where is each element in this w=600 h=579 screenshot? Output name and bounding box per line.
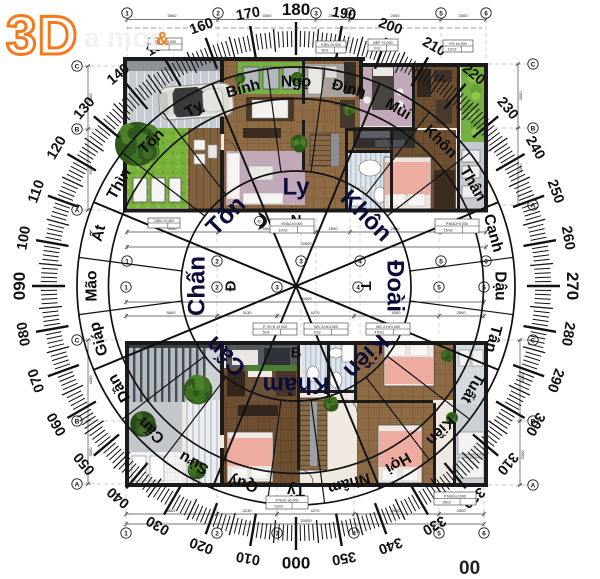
- svg-text:3: 3: [275, 284, 279, 291]
- svg-text:2: 2: [216, 10, 220, 17]
- svg-text:P.K ±0.000: P.K ±0.000: [449, 42, 466, 46]
- svg-text:5: 5: [439, 10, 443, 17]
- svg-text:WC 2-H±3.000: WC 2-H±3.000: [314, 325, 338, 329]
- svg-text:Mão: Mão: [83, 271, 100, 302]
- svg-text:3000: 3000: [88, 447, 93, 457]
- svg-text:5: 5: [439, 258, 443, 265]
- svg-text:T: T: [357, 281, 374, 290]
- svg-text:4270: 4270: [311, 508, 321, 513]
- svg-text:B: B: [75, 418, 80, 425]
- svg-text:KHÁC±0.000: KHÁC±0.000: [282, 222, 303, 226]
- svg-text:15m2: 15m2: [444, 229, 453, 233]
- svg-text:5800: 5800: [167, 310, 177, 315]
- svg-text:P. VS Đ ±3.000: P. VS Đ ±3.000: [263, 325, 287, 329]
- svg-text:090: 090: [10, 272, 29, 300]
- svg-text:6: 6: [482, 530, 486, 537]
- svg-text:1: 1: [124, 284, 128, 291]
- svg-text:&: &: [156, 29, 169, 49]
- svg-text:9m2: 9m2: [322, 49, 329, 53]
- svg-text:1: 1: [125, 10, 129, 17]
- svg-text:3D: 3D: [6, 4, 78, 66]
- svg-text:5m2: 5m2: [263, 331, 270, 335]
- svg-text:a mod: a mod: [84, 22, 166, 53]
- svg-text:270: 270: [563, 272, 582, 300]
- svg-text:7m2: 7m2: [374, 47, 381, 51]
- svg-text:B: B: [531, 125, 536, 132]
- svg-text:2m2: 2m2: [314, 331, 321, 335]
- svg-text:2500: 2500: [457, 310, 467, 315]
- svg-text:180: 180: [282, 0, 310, 19]
- svg-text:2500: 2500: [329, 226, 339, 231]
- svg-text:Đoài: Đoài: [382, 260, 409, 312]
- svg-text:00: 00: [459, 558, 480, 579]
- svg-text:3000: 3000: [518, 91, 523, 101]
- svg-text:C: C: [531, 61, 536, 68]
- svg-text:20000: 20000: [300, 241, 312, 246]
- svg-text:2500: 2500: [459, 13, 469, 18]
- svg-text:Ly: Ly: [282, 173, 310, 200]
- svg-text:P.NGỦ ±6.000: P.NGỦ ±6.000: [276, 497, 299, 502]
- svg-text:1: 1: [124, 530, 128, 537]
- svg-text:P.NGỦ±3.600: P.NGỦ±3.600: [444, 493, 466, 498]
- svg-text:6: 6: [484, 10, 488, 17]
- svg-text:Chấn: Chấn: [183, 256, 210, 316]
- svg-text:P.NGỦ+0.000: P.NGỦ+0.000: [446, 221, 468, 226]
- svg-text:C: C: [75, 337, 80, 344]
- svg-text:SÂN +0.450: SÂN +0.450: [154, 219, 173, 223]
- svg-text:A: A: [75, 481, 80, 488]
- svg-text:20000: 20000: [300, 518, 312, 523]
- svg-text:Ngọ: Ngọ: [281, 73, 311, 90]
- svg-text:12m2: 12m2: [448, 48, 457, 52]
- svg-text:2: 2: [215, 530, 219, 537]
- svg-text:A: A: [75, 207, 80, 214]
- svg-text:3: 3: [314, 10, 318, 17]
- svg-text:10m2: 10m2: [279, 229, 288, 233]
- svg-text:15m2: 15m2: [442, 501, 451, 505]
- svg-text:5800: 5800: [168, 13, 178, 18]
- svg-text:Dậu: Dậu: [492, 271, 509, 300]
- svg-text:4000: 4000: [88, 375, 93, 385]
- svg-text:3130: 3130: [243, 310, 253, 315]
- svg-text:3130: 3130: [243, 508, 253, 513]
- svg-text:000: 000: [282, 553, 310, 572]
- svg-text:P.ĂN ±0.000: P.ĂN ±0.000: [321, 43, 341, 47]
- svg-text:BẾP +0.000: BẾP +0.000: [373, 40, 392, 45]
- svg-text:B: B: [291, 344, 302, 361]
- svg-text:B: B: [75, 126, 80, 133]
- svg-text:Đ: Đ: [222, 280, 239, 291]
- svg-text:Khảm: Khảm: [263, 372, 330, 399]
- svg-text:N: N: [257, 219, 260, 224]
- svg-text:2500: 2500: [457, 508, 467, 513]
- svg-text:6: 6: [484, 258, 488, 265]
- svg-text:4270: 4270: [311, 310, 321, 315]
- svg-text:21m2: 21m2: [274, 505, 283, 509]
- svg-text:5000: 5000: [263, 13, 273, 18]
- svg-text:4.5m2: 4.5m2: [374, 331, 384, 335]
- svg-text:2500: 2500: [391, 13, 401, 18]
- svg-text:WC 2-H±3.000: WC 2-H±3.000: [376, 325, 400, 329]
- svg-text:A: A: [531, 482, 536, 489]
